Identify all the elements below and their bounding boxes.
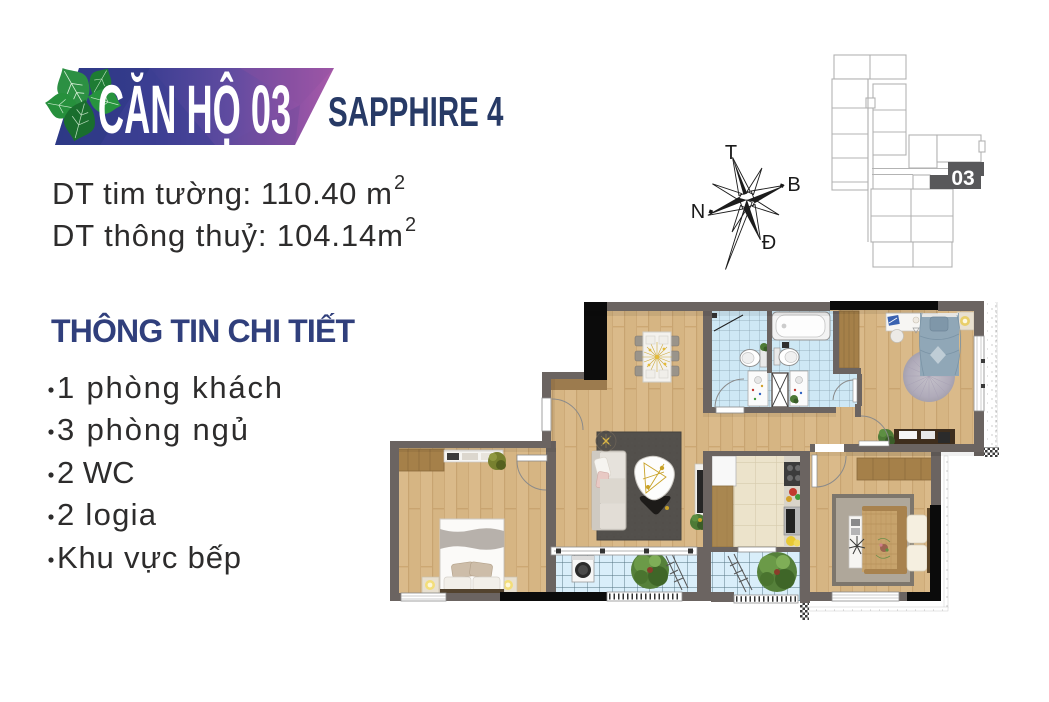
svg-text:DT thông thuỷ: 104.14m: DT thông thuỷ: 104.14m: [52, 218, 403, 253]
svg-text:Khu vực bếp: Khu vực bếp: [57, 540, 241, 575]
svg-text:DT tim tường: 110.40 m: DT tim tường: 110.40 m: [52, 176, 392, 211]
svg-text:2 WC: 2 WC: [57, 455, 135, 490]
svg-text:N: N: [691, 201, 705, 223]
svg-text:1 phòng khách: 1 phòng khách: [57, 370, 282, 405]
svg-text:3 phòng ngủ: 3 phòng ngủ: [57, 412, 248, 447]
svg-text:2: 2: [405, 214, 416, 236]
svg-text:Đ: Đ: [762, 232, 776, 254]
svg-text:T: T: [725, 142, 737, 164]
svg-text:THÔNG TIN CHI TIẾT: THÔNG TIN CHI TIẾT: [51, 313, 355, 349]
svg-text:B: B: [787, 174, 800, 196]
svg-text:SAPPHIRE 4: SAPPHIRE 4: [328, 87, 503, 135]
svg-text:2: 2: [394, 172, 405, 194]
svg-text:2 logia: 2 logia: [57, 497, 157, 532]
svg-text:03: 03: [951, 167, 974, 190]
svg-text:CĂN HỘ 03: CĂN HỘ 03: [98, 71, 291, 148]
